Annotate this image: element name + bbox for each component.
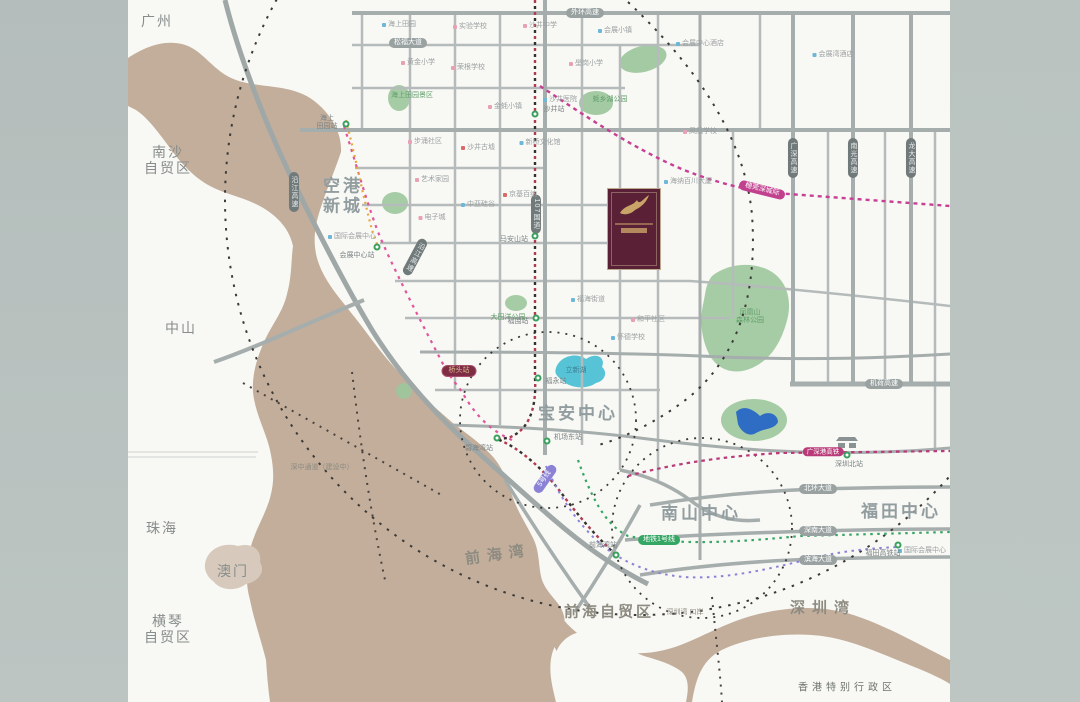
station-dot-icon (544, 438, 551, 445)
station-dot-icon (844, 452, 851, 459)
road-label-shennan: 深南大道 (799, 526, 837, 536)
project-logo-text-line (615, 223, 653, 225)
map-label-62: 深圳湾 口岸 (667, 609, 704, 617)
label-nansha-ftz: 南沙 自贸区 (144, 144, 192, 176)
station-dot-icon (613, 552, 620, 559)
map-label-43: 蚝乡湖公园 (593, 96, 628, 104)
label-futian-center: 福田中心 (861, 502, 941, 522)
map-label-33: 沙井中学 (523, 22, 557, 30)
station-label-7: 机场东站 (554, 434, 582, 442)
station-label-9: 深圳北站 (835, 461, 863, 469)
label-qianhai-bay: 前海湾 (464, 542, 532, 568)
map-label-34: 会展小镇 (598, 27, 632, 35)
station-label-3: 福围站 (508, 318, 529, 326)
blue-poi-dot-icon (571, 298, 575, 302)
pink-poi-dot-icon (401, 61, 405, 65)
road-label-guangshen: 广深高速 (788, 138, 798, 178)
map-label-37: 黄金小学 (401, 59, 435, 67)
map-label-50: 电子城 (419, 214, 446, 222)
map-label-39: 壆岗小学 (569, 60, 603, 68)
map-label-53: 凤凰学校 (683, 128, 717, 136)
red-poi-dot-icon (503, 193, 507, 197)
blue-poi-dot-icon (676, 42, 680, 46)
station-dot-icon (532, 233, 539, 240)
pink-poi-dot-icon (408, 140, 412, 144)
station-label-4: 福永站 (546, 378, 567, 386)
road-label-jihe: 机荷高速 (865, 379, 903, 389)
map-label-32: 实验学校 (453, 23, 487, 31)
road-label-g107: 107国道 (531, 195, 541, 234)
map-label-45: 沙井古墟 (461, 144, 495, 152)
station-label-2: 马安山站 (500, 236, 528, 244)
station-dot-icon (533, 315, 540, 322)
label-macau: 澳门 (217, 563, 249, 579)
map-label-31: 海上田园 (382, 21, 416, 29)
blue-poi-dot-icon (328, 235, 332, 239)
map-label-42: 沙井医院 (543, 96, 577, 104)
label-airport-new-town: 空港 新城 (323, 176, 363, 215)
red-poi-dot-icon (461, 146, 465, 150)
station-dot-icon (494, 435, 501, 442)
label-nanshan-center: 南山中心 (661, 504, 741, 524)
pink-poi-dot-icon (451, 66, 455, 70)
road-label-songfu: 松福大道 (389, 38, 427, 48)
station-dot-icon (374, 244, 381, 251)
road-label-beihuan: 北环大道 (799, 484, 837, 494)
pink-poi-dot-icon (683, 130, 687, 134)
label-zhongshan: 中山 (165, 320, 197, 336)
blue-poi-dot-icon (813, 53, 817, 57)
map-label-60: 深中通道（建设中） (291, 464, 354, 472)
road-label-yanjiang-1: 沿江高速 (289, 172, 299, 212)
label-baoan-center: 宝安中心 (538, 404, 618, 424)
road-label-binhai: 滨海大道 (799, 555, 837, 565)
line-label-metro5: 5号线 (532, 463, 559, 495)
station-label-qiaotou-highlight: 桥头站 (442, 365, 477, 377)
label-zhuhai: 珠海 (146, 520, 178, 536)
label-hongkong-sar: 香港特别行政区 (798, 682, 896, 694)
map-label-46: 新桥文化馆 (520, 139, 561, 147)
station-label-10: 福田高铁站 (866, 550, 901, 558)
station-label-8: 前海湾站 (589, 542, 617, 550)
road-label-nanguang: 南光高速 (848, 138, 858, 178)
map-label-61: 国际会展中心 (898, 547, 946, 555)
project-name-text (621, 228, 647, 233)
road-label-yanjiang-2: 沿江高速 (401, 237, 429, 277)
labels-overlay: 广州南沙 自贸区中山珠海澳门横琴 自贸区香港特别行政区前海湾深圳湾前海自贸区空港… (0, 0, 1080, 702)
map-label-48: 中亚硅谷 (461, 201, 495, 209)
station-dot-icon (895, 542, 902, 549)
project-marker (607, 188, 661, 270)
map-label-36: 会展湾酒店 (813, 51, 854, 59)
blue-poi-dot-icon (543, 98, 547, 102)
project-logo-swoosh-icon (612, 189, 656, 219)
map-label-47: 艺术家园 (415, 176, 449, 184)
blue-poi-dot-icon (611, 336, 615, 340)
blue-poi-dot-icon (461, 203, 465, 207)
pink-poi-dot-icon (631, 318, 635, 322)
map-canvas: 广州南沙 自贸区中山珠海澳门横琴 自贸区香港特别行政区前海湾深圳湾前海自贸区空港… (0, 0, 1080, 702)
label-shenzhen-bay: 深圳湾 (790, 599, 856, 616)
map-label-35: 会展中心酒店 (676, 40, 724, 48)
label-qianhai-ftz: 前海自贸区 (564, 603, 654, 620)
station-label-1: 沙井站 (544, 106, 565, 114)
station-label-5: 会展中心站 (340, 252, 375, 260)
blue-poi-dot-icon (382, 23, 386, 27)
map-label-58: 凤凰山 森林公园 (736, 309, 764, 325)
line-label-hsr: 广深港高铁 (803, 447, 844, 456)
map-label-56: 怀德学校 (611, 334, 645, 342)
map-label-52: 海纳百川大厦 (664, 178, 712, 186)
station-dot-icon (343, 121, 350, 128)
pink-poi-dot-icon (415, 178, 419, 182)
blue-poi-dot-icon (598, 29, 602, 33)
map-label-54: 福海街道 (571, 296, 605, 304)
road-label-longda: 龙大高速 (906, 138, 916, 178)
map-label-51: 国际会展中心 (328, 233, 376, 241)
map-label-44: 步涌社区 (408, 138, 442, 146)
station-label-6: 碧海湾站 (465, 445, 493, 453)
station-label-0: 海上 田园站 (317, 115, 338, 131)
map-label-41: 金蚝小镇 (488, 103, 522, 111)
map-label-59: 立新湖 (566, 367, 587, 375)
pink-poi-dot-icon (453, 25, 457, 29)
blue-poi-dot-icon (520, 141, 524, 145)
map-label-49: 京基百纳 (503, 191, 537, 199)
line-label-metro1: 地铁1号线 (638, 535, 680, 545)
station-dot-icon (535, 375, 542, 382)
label-guangzhou: 广州 (141, 13, 173, 29)
pink-poi-dot-icon (488, 105, 492, 109)
pink-poi-dot-icon (569, 62, 573, 66)
map-label-55: 和平社区 (631, 316, 665, 324)
label-hengqin-ftz: 横琴 自贸区 (144, 613, 192, 645)
station-dot-icon (532, 111, 539, 118)
road-label-waihuan: 外环高速 (566, 8, 604, 18)
map-label-40: 海上田园景区 (391, 92, 433, 100)
line-label-suiguanshen: 穗莞深城际 (738, 179, 786, 200)
pink-poi-dot-icon (523, 24, 527, 28)
map-label-38: 荣根学校 (451, 64, 485, 72)
pink-poi-dot-icon (419, 216, 423, 220)
blue-poi-dot-icon (664, 180, 668, 184)
